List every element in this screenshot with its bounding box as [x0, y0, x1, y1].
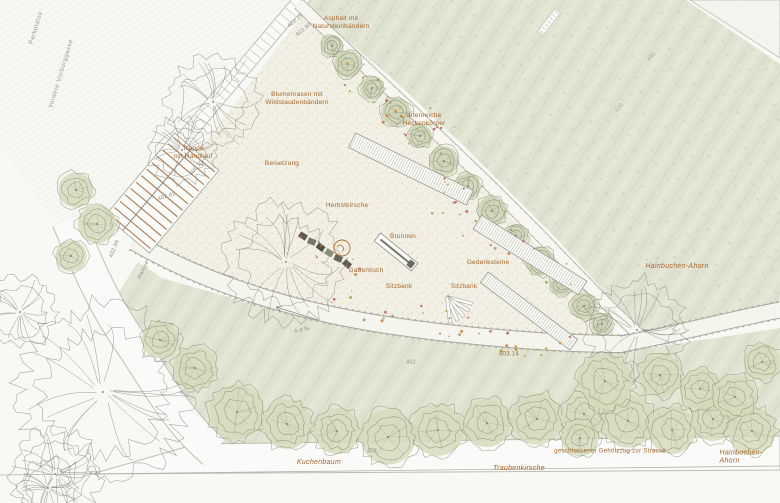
site-plan-page: ParkplätzeVordere Vorburggasse403.29403.… [0, 0, 780, 503]
site-plan-drawing [0, 0, 780, 503]
